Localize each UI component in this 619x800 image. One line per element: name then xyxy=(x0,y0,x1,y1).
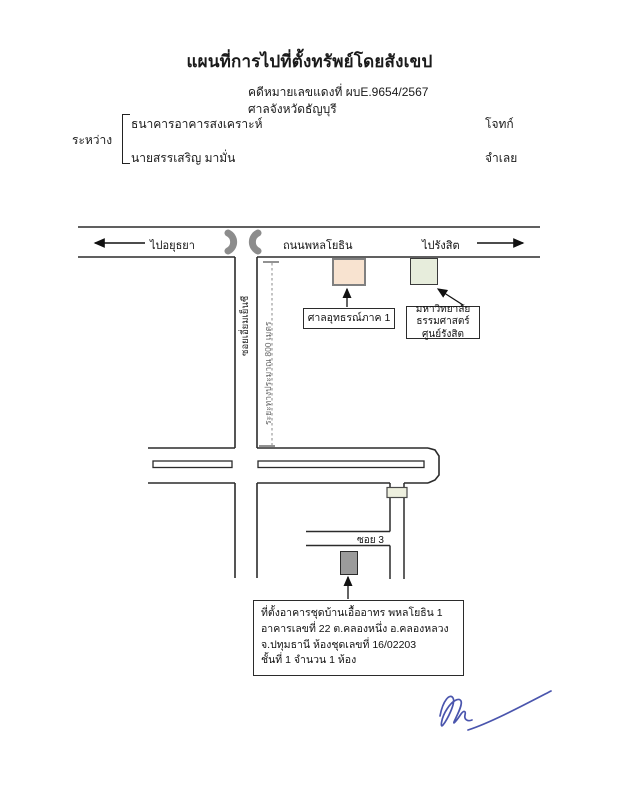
west-direction-label: ไปอยุธยา xyxy=(150,236,195,254)
university-building-arrow xyxy=(438,289,463,305)
u-turn-bridge-icon xyxy=(228,233,258,251)
university-label: มหาวิทยาลัยธรรมศาสตร์ ศูนย์รังสิต xyxy=(407,304,479,342)
property-info-line1: ที่ตั้งอาคารชุดบ้านเอื้ออาทร พหลโยธิน 1 xyxy=(261,606,457,622)
bridge-marker-icon xyxy=(387,488,407,498)
court-label: ศาลอุทธรณ์ภาค 1 xyxy=(308,312,391,325)
east-direction-label: ไปรังสิต xyxy=(422,236,460,254)
map-canvas xyxy=(0,0,619,800)
property-info-line4: ชั้นที่ 1 จำนวน 1 ห้อง xyxy=(261,653,457,669)
soi3-label: ซอย 3 xyxy=(357,533,384,548)
court-building xyxy=(332,258,366,286)
property-info-box: ที่ตั้งอาคารชุดบ้านเอื้ออาทร พหลโยธิน 1 … xyxy=(253,600,464,676)
court-map-document: แผนที่การไปที่ตั้งทรัพย์โดยสังเขป คดีหมา… xyxy=(0,0,619,800)
signature xyxy=(440,691,551,730)
university-building xyxy=(410,258,438,285)
distance-label: ระยะทางประมาณ 800 เมตร xyxy=(261,322,275,426)
property-info-line3: จ.ปทุมธานี ห้องชุดเลขที่ 16/02203 xyxy=(261,638,457,654)
university-label-box: มหาวิทยาลัยธรรมศาสตร์ ศูนย์รังสิต xyxy=(406,306,480,339)
main-road-label: ถนนพหลโยธิน xyxy=(283,236,353,254)
side-soi-label: ซอยเอี่ยมเย็นชี xyxy=(238,296,253,356)
property-info-line2: อาคารเลขที่ 22 ต.คลองหนึ่ง อ.คลองหลวง xyxy=(261,622,457,638)
property-building xyxy=(340,551,358,575)
court-label-box: ศาลอุทธรณ์ภาค 1 xyxy=(303,308,395,329)
middle-divided-road xyxy=(148,448,439,483)
